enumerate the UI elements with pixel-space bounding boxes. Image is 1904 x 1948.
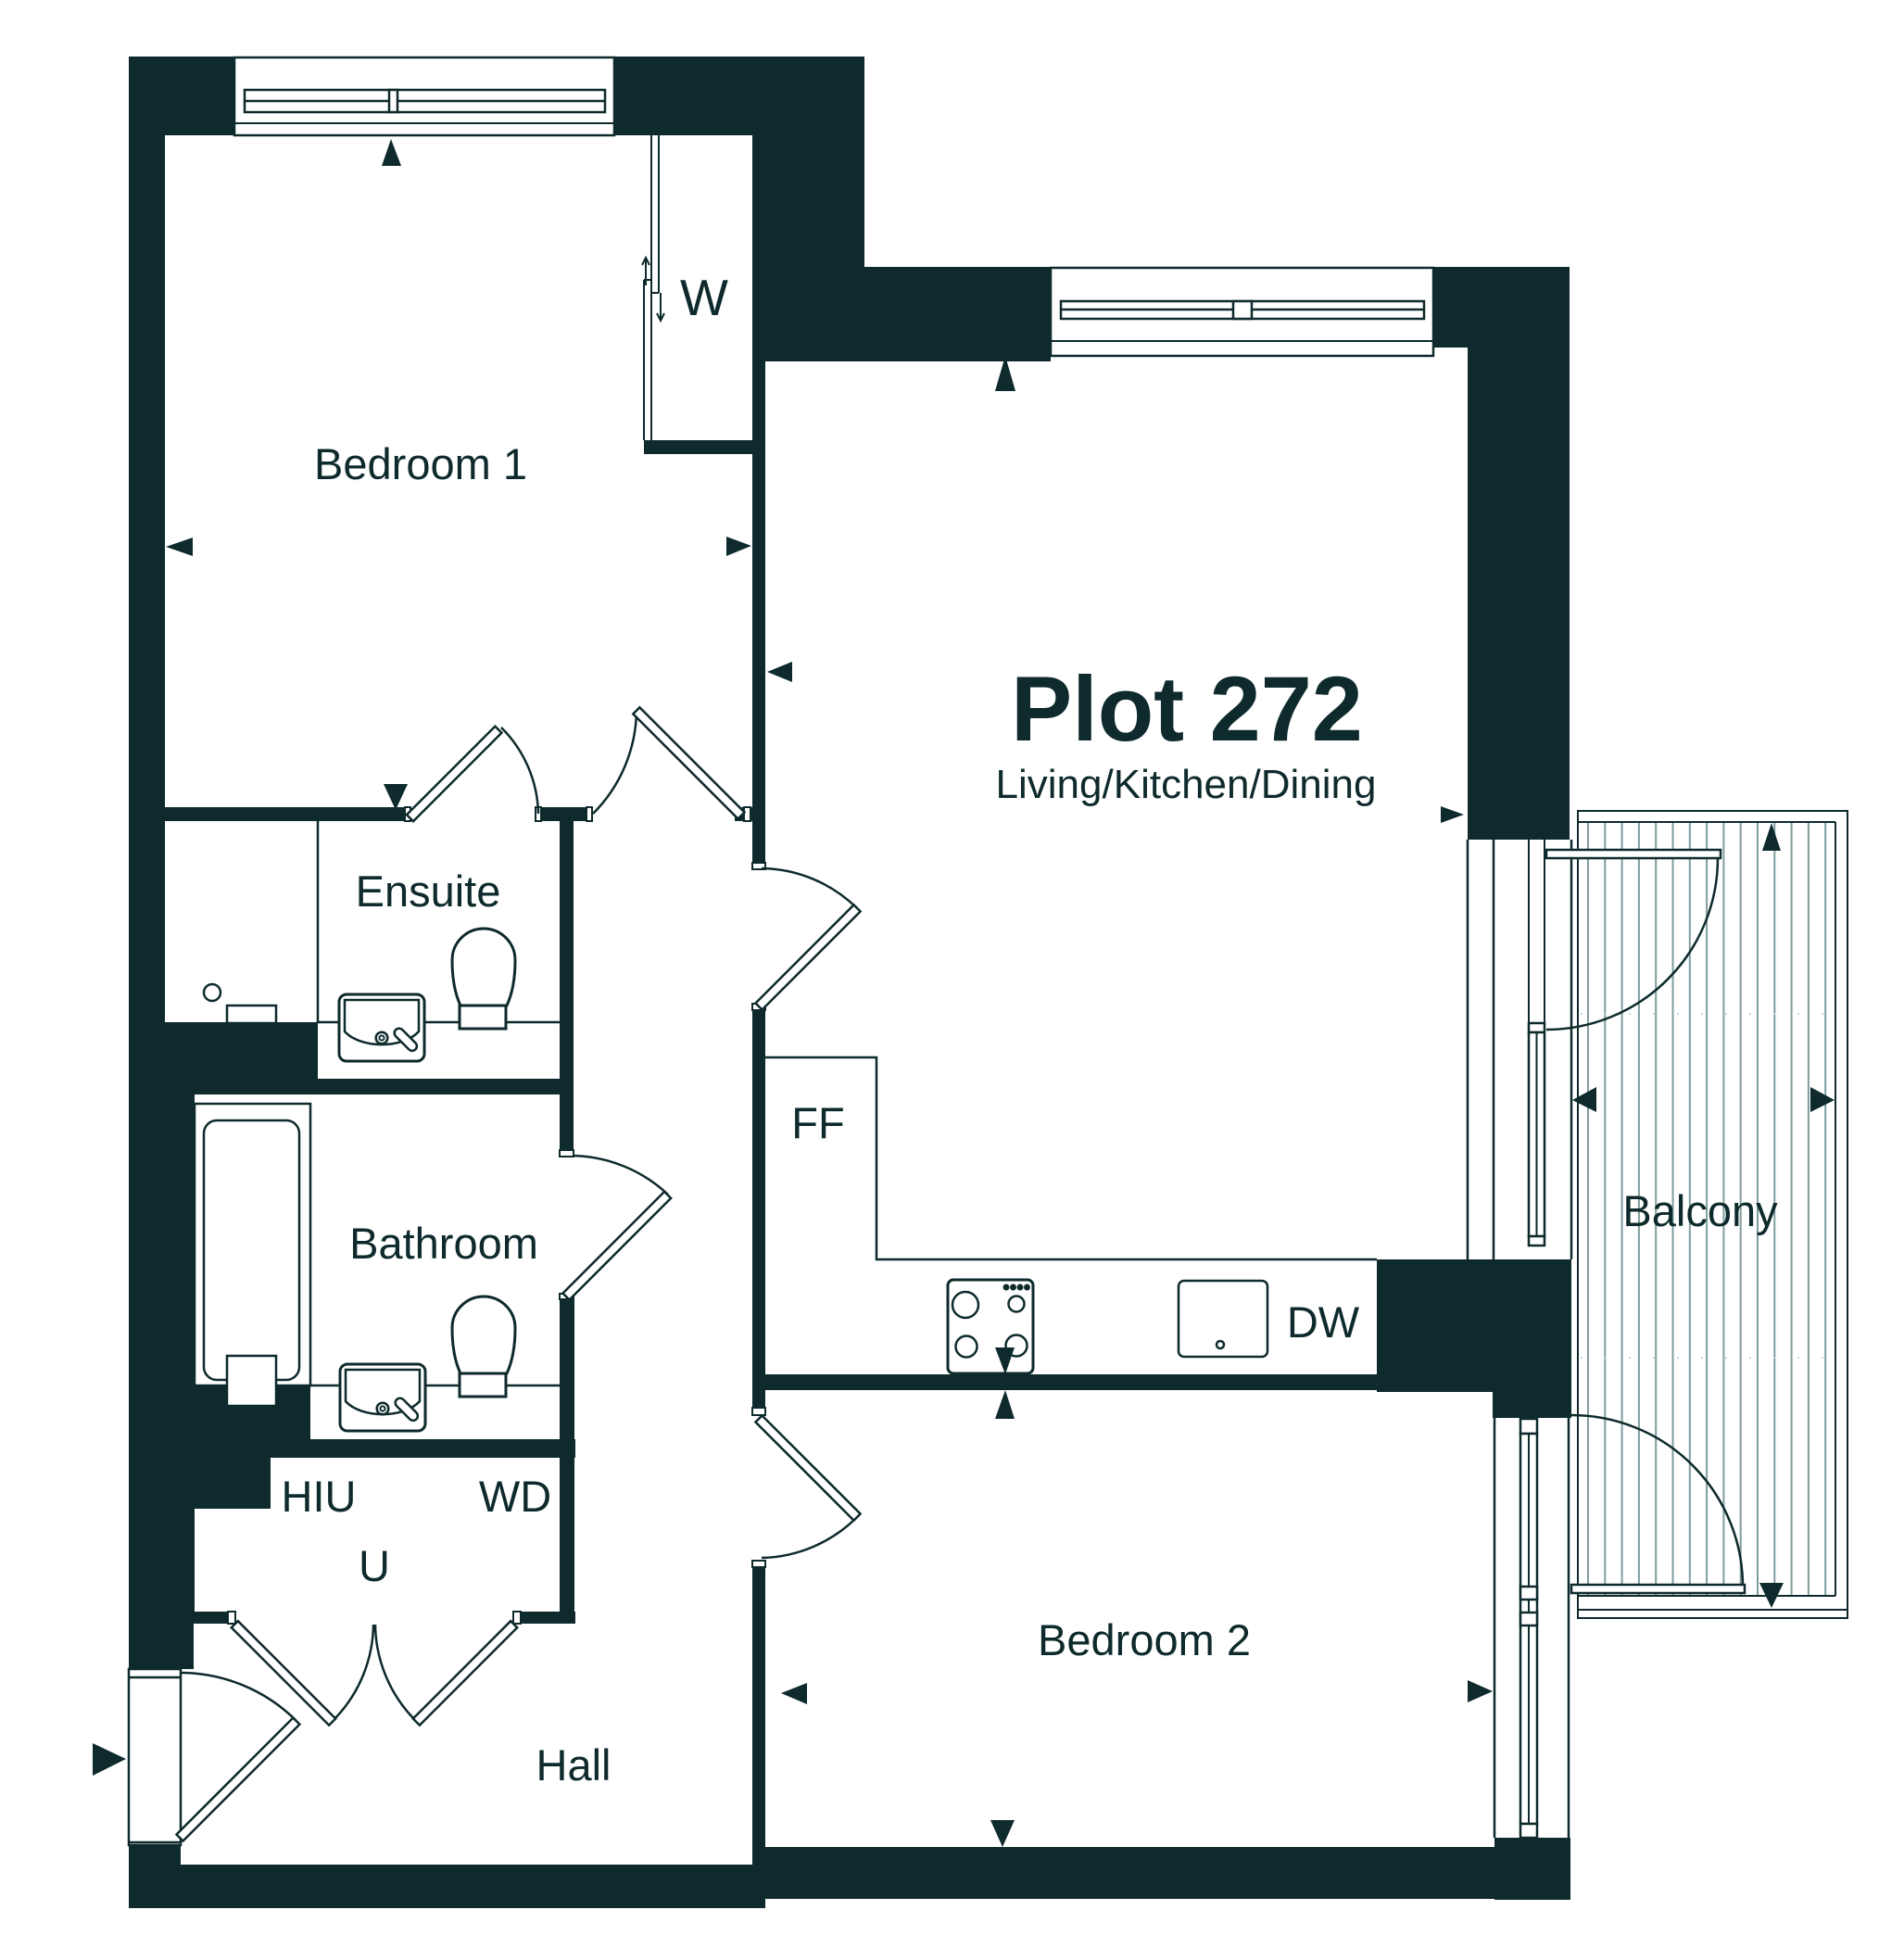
svg-text:Balcony: Balcony bbox=[1622, 1186, 1778, 1235]
svg-text:Bedroom 2: Bedroom 2 bbox=[1038, 1615, 1251, 1664]
svg-text:DW: DW bbox=[1287, 1297, 1360, 1347]
svg-text:FF: FF bbox=[791, 1098, 844, 1147]
svg-text:Plot 272: Plot 272 bbox=[1011, 657, 1363, 760]
svg-text:Ensuite: Ensuite bbox=[356, 866, 501, 916]
svg-text:WD: WD bbox=[479, 1472, 551, 1521]
svg-text:W: W bbox=[680, 269, 728, 326]
svg-text:Bedroom 1: Bedroom 1 bbox=[314, 439, 527, 488]
svg-text:HIU: HIU bbox=[282, 1472, 357, 1521]
svg-text:Bathroom: Bathroom bbox=[349, 1219, 538, 1268]
svg-text:U: U bbox=[359, 1541, 390, 1590]
svg-text:Living/Kitchen/Dining: Living/Kitchen/Dining bbox=[996, 762, 1377, 807]
svg-text:Hall: Hall bbox=[536, 1740, 612, 1790]
